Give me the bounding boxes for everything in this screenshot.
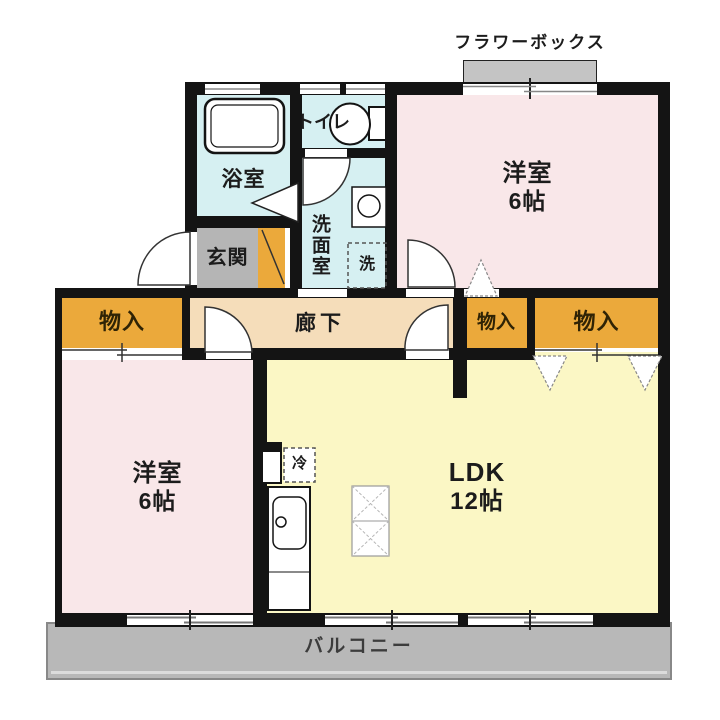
toilet-label: トイレ <box>296 112 356 133</box>
refrigerator-label: 冷 <box>284 455 315 472</box>
storage-right-label: 物入 <box>535 309 658 334</box>
symbols-overlay <box>0 0 720 720</box>
washroom-label: 洗面室 <box>308 198 330 293</box>
ldk-size: 12帖 <box>377 488 577 516</box>
ldk-label: LDK 12帖 <box>377 458 577 515</box>
sliding-window-lines <box>127 618 593 623</box>
closet-folding-door-down-2-icon <box>628 356 662 390</box>
floor-plan: フラワーボックス <box>0 0 720 720</box>
door-swing-bedroom-top-icon <box>408 240 455 287</box>
top-window-lines <box>205 87 597 92</box>
bedroom-left-label: 洋室 6帖 <box>62 460 253 514</box>
shoe-cabinet-diagonal-icon <box>262 230 284 284</box>
storage-left-label: 物入 <box>62 309 182 334</box>
bedroom-top-name: 洋室 <box>397 160 658 188</box>
closet-folding-door-up-icon <box>465 260 497 296</box>
storage-mid-label: 物入 <box>464 312 528 334</box>
washer-label: 洗 <box>348 256 386 274</box>
closet-folding-door-down-1-icon <box>533 356 567 390</box>
door-swing-ldk-icon <box>405 305 448 350</box>
door-swing-bedroom-left-icon <box>205 307 252 352</box>
closet-sliding-lines <box>62 343 658 362</box>
entrance-label: 玄関 <box>197 247 258 270</box>
bedroom-top-label: 洋室 6帖 <box>397 160 658 214</box>
bedroom-top-size: 6帖 <box>397 188 658 214</box>
door-swing-entrance-icon <box>138 232 190 285</box>
ldk-name: LDK <box>377 458 577 488</box>
bathtub-icon <box>205 99 284 153</box>
washbasin-icon <box>352 187 386 227</box>
balcony-label: バルコニー <box>46 636 672 658</box>
kitchen-counter-icon <box>268 487 310 610</box>
bedroom-left-size: 6帖 <box>62 488 253 514</box>
hallway-label: 廊下 <box>270 312 370 336</box>
bath-label: 浴室 <box>197 168 290 192</box>
bedroom-left-name: 洋室 <box>62 460 253 488</box>
